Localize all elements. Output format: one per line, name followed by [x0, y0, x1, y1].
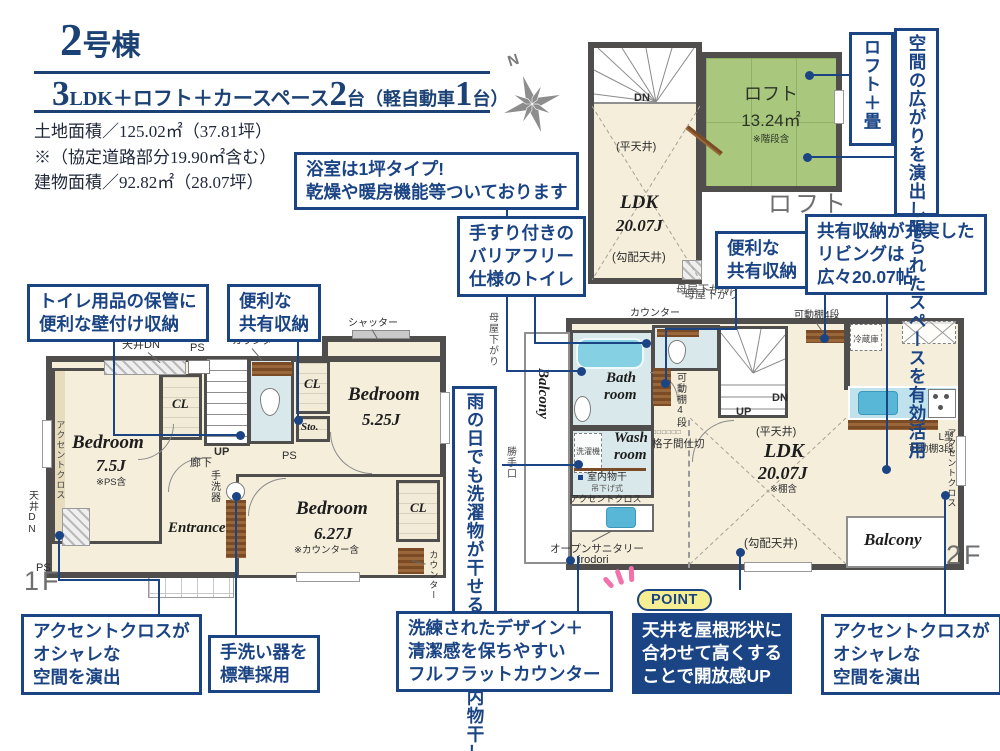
f2-up-label: UP [736, 406, 751, 419]
callout-flat-counter: 洗練されたデザイン＋ 清潔感を保ちやすい フルフラットカウンター [396, 611, 613, 692]
f2-dn-label: DN [772, 392, 788, 405]
point-spark-1 [602, 576, 614, 589]
f2-koushi-dots: □□□□□□ [652, 429, 682, 436]
callout-point-line2: 合わせて高くする [642, 642, 782, 665]
f2-counter-label: カウンター [630, 308, 680, 320]
callout-living-storage: 共有収納が充実した リビングは 広々20.07帖 [805, 214, 987, 295]
connector-bath-h [506, 370, 582, 372]
f2-moyasagari-left: 母屋下がり [486, 312, 498, 367]
connector-lofttatami-h [810, 74, 851, 76]
f1-hallway-label: 廊下 [190, 457, 212, 470]
callout-shared2f-line1: 便利な [727, 237, 797, 260]
connector-accent2f-v [944, 495, 946, 615]
f2-drying-pole [574, 468, 646, 471]
point-badge: POINT [637, 589, 712, 611]
callout-point-ceiling: 天井を屋根形状に 合わせて高くする ことで開放感UP [632, 613, 792, 694]
f2-balcony-bottom-label: Balcony [864, 530, 922, 550]
callout-accent2f-line1: アクセントクロスが [833, 620, 990, 643]
f2-floor-name: 2F [946, 540, 984, 571]
land-note: ※（協定道路部分19.90㎡含む） [34, 145, 276, 171]
f1-bed525-size: 5.25J [362, 410, 400, 430]
callout-shared1f-line2: 共有収納 [239, 313, 309, 336]
callout-shared-storage-2f: 便利な 共有収納 [715, 231, 809, 289]
connector-point-v [739, 552, 741, 590]
f2-shelf-4dan-1-label: 可動棚4段 [674, 372, 686, 428]
building-suffix: 号棟 [83, 30, 141, 62]
building-title: 2号棟 [60, 14, 141, 66]
f1-entrance-label: Entrance [168, 520, 226, 537]
f2-accent-wash-label: アクセントクロス [570, 494, 642, 504]
callout-wall-storage: トイレ用品の保管に 便利な壁付け収納 [27, 284, 209, 342]
callout-shared-storage-1f: 便利な 共有収納 [227, 284, 321, 342]
point-spark-2 [614, 569, 624, 586]
f2-monohoshi-label: 室内物干 [587, 472, 627, 484]
f2-bath-stool [574, 396, 591, 422]
f2-moyasagari-top: 母屋下がり [684, 289, 739, 302]
callout-handwash-line1: 手洗い器を [220, 641, 308, 664]
connector-laundry-h [502, 464, 578, 466]
callout-handwash-line2: 標準採用 [220, 664, 308, 687]
loft-room-note: ※階段含 [700, 131, 842, 145]
area-info: 土地面積／125.02㎡（37.81坪） ※（協定道路部分19.90㎡含む） 建… [34, 119, 276, 196]
callout-shared2f-line2: 共有収納 [727, 260, 797, 283]
loft-ldk-label: LDK [620, 192, 658, 214]
f2-toilet-counter [657, 329, 699, 337]
f2-stove-burner-2 [944, 394, 949, 399]
loft-room-area: 13.24㎡ [700, 106, 842, 131]
loft-ldk-size: 20.07J [616, 216, 663, 236]
point-spark-3 [629, 566, 635, 582]
connector-lofttatami-dot [805, 71, 814, 80]
f2-stove [928, 389, 956, 418]
connector-accent2f-dot [941, 491, 950, 500]
f1-bed627-window [296, 572, 360, 582]
f1-bed525-window [440, 392, 450, 444]
callout-wallstorage-line2: 便利な壁付け収納 [39, 313, 197, 336]
callout-counter-line3: フルフラットカウンター [408, 663, 601, 686]
connector-space-dot [803, 153, 812, 162]
f2-wash-label-2: room [614, 447, 647, 464]
f1-tearaiki-label: 手洗器 [208, 470, 220, 503]
connector-handwash-v [235, 496, 237, 636]
layout-line: 3 LDK＋ロフト＋カースペース 2 台（軽自動車 1 台） [52, 74, 508, 114]
callout-accent1f-line3: 空間を演出 [33, 666, 190, 689]
callout-living-line2: リビングは [817, 243, 975, 266]
callout-handwash: 手洗い器を 標準採用 [208, 635, 320, 693]
f1-cl1-label: CL [172, 396, 189, 412]
f1-bed525-label: Bedroom [348, 384, 420, 406]
f1-ps-niche [188, 360, 210, 374]
connector-shared2f-dot [661, 379, 670, 388]
connector-wallstorage-v [113, 338, 115, 436]
f1-counter-right-label: カウンター [428, 550, 438, 600]
connector-shared2f-v2 [665, 328, 667, 382]
f2-right-window [956, 436, 966, 486]
connector-shared2f-v1 [735, 284, 737, 330]
connector-shared1f-dot [294, 416, 303, 425]
connector-accent1f-h [58, 579, 160, 581]
f1-ceiling-dn-left-label: 天井DN [26, 490, 38, 536]
layout-num-cars: 2 [329, 74, 347, 114]
f1-sto-label: Sto. [301, 421, 318, 433]
connector-living-v2 [886, 286, 888, 468]
f2-balcony-left [524, 332, 570, 564]
connector-barrier-h [534, 342, 646, 344]
loft-room-name: ロフト [700, 80, 842, 106]
layout-text-2: 台（軽自動車 [347, 85, 455, 111]
f1-floor-name: 1F [24, 566, 62, 597]
f1-toilet-counter [252, 362, 292, 376]
f1-bed627-note: ※カウンター含 [294, 546, 359, 557]
callout-bathroom-line1: 浴室は1坪タイプ! [306, 158, 567, 181]
callout-counter-line2: 清潔感を保ちやすい [408, 640, 601, 663]
callout-accent1f-line2: オシャレな [33, 643, 190, 666]
connector-shared2f-h [665, 328, 737, 330]
loft-room-labels: ロフト 13.24㎡ ※階段含 [700, 80, 842, 145]
compass-icon [494, 60, 570, 140]
f2-irodori-label: irodori [578, 554, 609, 567]
callout-accent2f-line2: オシャレな [833, 643, 990, 666]
f1-cl2-label: CL [304, 376, 321, 392]
callout-bathroom: 浴室は1坪タイプ! 乾燥や暖房機能等ついております [294, 152, 579, 210]
connector-accent1f-dot [55, 531, 64, 540]
f2-sanitary-sink [606, 507, 636, 528]
f2-flat-ceiling-label: (平天井) [756, 426, 796, 439]
f2-kitchen-sink [858, 391, 898, 415]
connector-wallstorage-dot [236, 431, 245, 440]
f2-koushi-label: 格子間仕切 [652, 438, 705, 450]
f2-balcony-left-label: Balcony [534, 368, 551, 419]
land-area: 土地面積／125.02㎡（37.81坪） [34, 119, 276, 145]
f2-irodori-bullet [566, 556, 575, 565]
f2-stove-burner-1 [933, 394, 938, 399]
callout-wallstorage-line1: トイレ用品の保管に [39, 290, 197, 313]
callout-point-line3: ことで開放感UP [642, 665, 782, 688]
connector-barrier-dot [642, 339, 651, 348]
callout-barrier-line2: バリアフリー [469, 245, 574, 268]
header-rule-bottom [34, 110, 490, 113]
floorplan-flyer: 2号棟 3 LDK＋ロフト＋カースペース 2 台（軽自動車 1 台） 土地面積／… [0, 0, 1000, 751]
loft-slope-ceiling-label: (勾配天井) [612, 252, 666, 265]
layout-text-1: LDK＋ロフト＋カースペース [70, 82, 330, 111]
f1-left-window [42, 420, 52, 468]
f2-ldk-size: 20.07J [758, 463, 808, 484]
connector-shared1f-v [297, 332, 299, 418]
callout-loft-tatami: ロフト＋畳 [849, 32, 894, 146]
connector-handwash-dot [232, 492, 241, 501]
f2-shelf-4dan-2-label: 可動棚4段 [794, 310, 840, 322]
callout-accent-cloth-1f: アクセントクロスが オシャレな 空間を演出 [21, 614, 202, 695]
callout-space-utilization: 空間の広がりを演出し限られたスペースを有効活用 [894, 28, 939, 216]
loft-dn-label: DN [634, 92, 650, 105]
callout-accent1f-line1: アクセントクロスが [33, 620, 190, 643]
connector-wallstorage-h [113, 434, 239, 436]
f1-up-label: UP [214, 446, 229, 459]
f2-tsurisage-label: 吊下げ式 [591, 484, 623, 493]
f1-shutter-bar [352, 330, 410, 339]
callout-accent-cloth-2f: アクセントクロスが オシャレな 空間を演出 [821, 614, 1000, 695]
f2-bath-label-2: room [604, 387, 637, 404]
f1-cl3-label: CL [410, 500, 427, 516]
callout-barrier-free-toilet: 手すり付きの バリアフリー 仕様のトイレ [457, 216, 586, 297]
callout-barrier-line3: 仕様のトイレ [469, 268, 574, 291]
connector-accent1f-v2 [158, 579, 160, 615]
connector-accent1f-v1 [58, 535, 60, 581]
f1-corner-hatch [62, 508, 90, 546]
f1-ps-mid-label: PS [282, 450, 297, 463]
f1-bed75-size: 7.5J [96, 456, 126, 476]
building-area: 建物面積／92.82㎡（28.07坪） [34, 170, 276, 196]
callout-point-line1: 天井を屋根形状に [642, 619, 782, 642]
f1-ps-top-label: PS [190, 342, 205, 355]
callout-living-line3: 広々20.07帖 [817, 266, 975, 289]
callout-shared1f-line1: 便利な [239, 290, 309, 313]
callout-indoor-laundry: 雨の日でも洗濯物が干せる便利な室内物干し [452, 386, 497, 626]
connector-bath-dot [577, 367, 586, 376]
f2-slope-ceiling-label: (勾配天井) [744, 538, 798, 551]
callout-barrier-line1: 手すり付きの [469, 222, 574, 245]
f1-ceiling-dn-hatch [104, 360, 186, 375]
loft-flat-ceiling-label: (平天井) [616, 141, 656, 154]
callout-living-line1: 共有収納が充実した [817, 220, 975, 243]
callout-counter-line1: 洗練されたデザイン＋ [408, 617, 601, 640]
building-number: 2 [60, 15, 83, 65]
connector-laundry-dot [574, 460, 583, 469]
f1-bed627-label: Bedroom [296, 498, 368, 520]
connector-living-dot1 [820, 334, 829, 343]
connector-barrier-v [534, 292, 536, 344]
callout-bathroom-line2: 乾燥や暖房機能等ついております [306, 181, 567, 204]
f2-wash-label-1: Wash [614, 430, 648, 447]
connector-space-h [808, 156, 895, 158]
f2-stove-burner-3 [938, 405, 943, 410]
layout-num-ldk: 3 [52, 74, 70, 114]
f2-bath-label-1: Bath [606, 370, 636, 387]
connector-living-dot2 [882, 465, 891, 474]
f2-fridge-box: 冷蔵庫 [850, 324, 882, 351]
connector-point-dot [736, 548, 745, 557]
f2-katteguchi-label: 勝手口 [504, 446, 516, 479]
f2-ldk-label: LDK [764, 440, 804, 463]
f2-ldk-note: ※棚含 [770, 485, 797, 496]
f1-bed627-size: 6.27J [314, 524, 352, 544]
layout-num-kei: 1 [455, 74, 473, 114]
f1-shutter-label: シャッター [348, 318, 398, 330]
connector-counter-v [577, 556, 579, 612]
callout-accent2f-line3: 空間を演出 [833, 666, 990, 689]
f1-bed75-note: ※PS含 [96, 478, 126, 489]
f2-monohoshi-bullet [578, 475, 583, 480]
f1-accent-label: アクセントクロス [55, 420, 65, 500]
